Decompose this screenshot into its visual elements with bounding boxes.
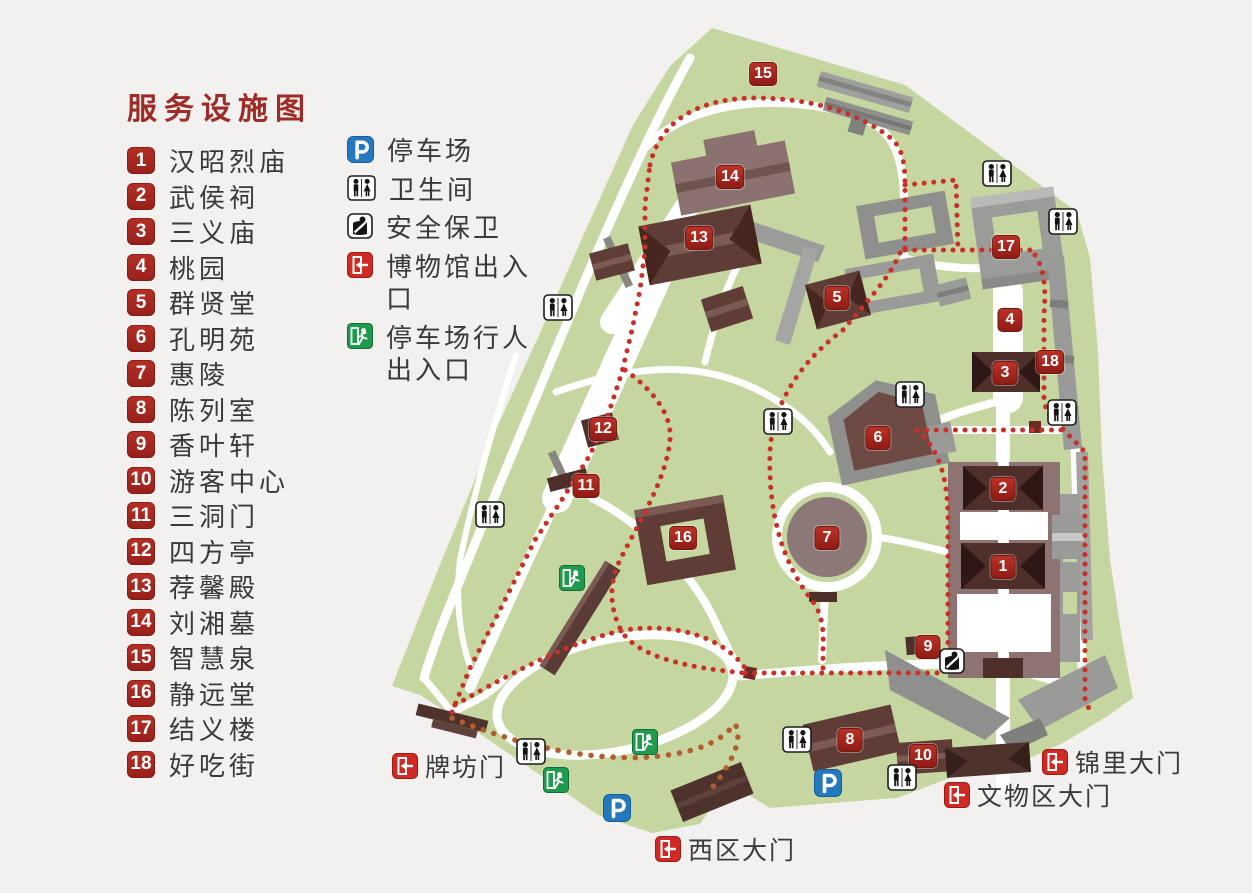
facility-item: 博物馆出入口 [347,251,547,316]
legend-item: 16静远堂 [127,679,312,708]
legend-item-label: 三洞门 [169,497,259,534]
toilet-icon [516,738,546,765]
legend-panel: 服务设施图 1汉昭烈庙 2武侯祠 3三义庙 4桃园 5群贤堂 6孔明苑 7惠陵 … [127,84,312,785]
legend-item-label: 刘湘墓 [169,604,259,641]
map-marker-15[interactable]: 15 [749,62,777,86]
facility-label: 博物馆出入口 [386,251,544,316]
legend-item-number: 16 [127,680,155,707]
museum-exit-icon [944,782,970,808]
pedestrian-exit-icon [632,729,658,755]
legend-item-number: 14 [127,609,155,636]
legend-item-number: 2 [127,183,155,210]
legend-item-label: 桃园 [169,249,229,286]
toilet-icon [543,294,573,321]
legend-item: 15智慧泉 [127,643,312,672]
toilet-icon [763,408,793,435]
gate-relics-area: 文物区大门 [944,777,1112,813]
map-marker-12[interactable]: 12 [589,417,617,441]
facility-label: 安全保卫 [386,212,544,245]
toilet-icon [895,381,925,408]
legend-item-label: 游客中心 [169,462,289,499]
facility-label: 停车场 [387,135,545,168]
legend-item-label: 荐馨殿 [169,568,259,605]
legend-item: 18好吃街 [127,750,312,779]
legend-item-label: 三义庙 [169,213,259,250]
facility-item: 停车场行人出入口 [347,322,547,387]
legend-item: 11三洞门 [127,501,312,530]
museum-exit-icon [392,753,418,779]
toilet-icon [782,726,812,753]
legend-item: 12四方亭 [127,537,312,566]
legend-item: 13荐馨殿 [127,572,312,601]
toilet-icon [1048,208,1078,235]
map-marker-14[interactable]: 14 [716,165,744,189]
legend-item: 10游客中心 [127,466,312,495]
facility-label: 卫生间 [389,174,547,207]
map-marker-18[interactable]: 18 [1036,350,1064,374]
legend-item-label: 群贤堂 [169,284,259,321]
gate-label: 西区大门 [688,831,796,867]
legend-item: 2武侯祠 [127,182,312,211]
legend-item-label: 智慧泉 [169,639,259,676]
map-marker-3[interactable]: 3 [993,361,1018,385]
legend-item-number: 10 [127,467,155,494]
legend-item-number: 6 [127,325,155,352]
pedestrian-exit-icon [543,767,569,793]
pedestrian-exit-icon [347,323,373,349]
parking-icon [814,769,842,797]
security-icon [939,648,965,674]
legend-item-label: 静远堂 [169,675,259,712]
legend-item-number: 12 [127,538,155,565]
map-marker-1[interactable]: 1 [991,555,1016,579]
legend-item-label: 武侯祠 [169,178,259,215]
legend-item: 6孔明苑 [127,324,312,353]
legend-item-number: 17 [127,715,155,742]
gate-label: 牌坊门 [425,748,506,784]
toilet-icon [887,764,917,791]
gate-jinli: 锦里大门 [1042,744,1183,780]
museum-exit-icon [1042,749,1068,775]
facility-legend: 停车场 卫生间 安全保卫 博物馆出入口 停车场行人出入口 [347,135,547,393]
gate-paifang: 牌坊门 [392,748,506,784]
legend-item: 9香叶轩 [127,430,312,459]
legend-item: 1汉昭烈庙 [127,146,312,175]
map-marker-9[interactable]: 9 [916,635,941,659]
legend-item-number: 11 [127,502,155,529]
map-marker-11[interactable]: 11 [573,474,600,498]
main-complex [948,462,1084,678]
legend-item-label: 结义楼 [169,710,259,747]
facility-item: 安全保卫 [347,212,547,245]
legend-item-number: 1 [127,147,155,174]
legend-item-label: 香叶轩 [169,426,259,463]
map-marker-16[interactable]: 16 [669,526,697,550]
map-marker-6[interactable]: 6 [866,426,891,450]
legend-item-label: 汉昭烈庙 [169,142,289,179]
legend-item-number: 4 [127,254,155,281]
pedestrian-exit-icon [559,565,585,591]
legend-item: 3三义庙 [127,217,312,246]
park-service-map-page: 服务设施图 1汉昭烈庙 2武侯祠 3三义庙 4桃园 5群贤堂 6孔明苑 7惠陵 … [0,0,1252,893]
legend-item-number: 7 [127,360,155,387]
map-marker-17[interactable]: 17 [992,235,1020,259]
parking-icon [603,794,631,822]
legend-item-label: 好吃街 [169,746,259,783]
parking-icon [347,136,374,163]
legend-item-number: 5 [127,289,155,316]
legend-item: 14刘湘墓 [127,608,312,637]
security-icon [347,213,373,239]
legend-item-number: 15 [127,644,155,671]
legend-items: 1汉昭烈庙 2武侯祠 3三义庙 4桃园 5群贤堂 6孔明苑 7惠陵 8陈列室 9… [127,146,312,779]
toilet-icon [1047,399,1077,426]
legend-title: 服务设施图 [127,84,312,128]
legend-item-number: 9 [127,431,155,458]
toilet-icon [982,160,1012,187]
gate-label: 锦里大门 [1075,744,1183,780]
toilet-icon [347,175,376,201]
legend-item-number: 13 [127,573,155,600]
legend-item-number: 3 [127,218,155,245]
legend-item: 7惠陵 [127,359,312,388]
map-marker-7[interactable]: 7 [815,526,840,550]
legend-item: 4桃园 [127,253,312,282]
facility-item: 停车场 [347,135,547,168]
facility-item: 卫生间 [347,174,547,207]
legend-item-label: 孔明苑 [169,320,259,357]
toilet-icon [475,501,505,528]
museum-exit-icon [655,836,681,862]
legend-item-label: 四方亭 [169,533,259,570]
map-marker-2[interactable]: 2 [991,477,1016,501]
legend-item: 8陈列室 [127,395,312,424]
museum-exit-icon [347,252,373,278]
legend-item-label: 陈列室 [169,391,259,428]
facility-label: 停车场行人出入口 [386,322,544,387]
legend-item-number: 8 [127,396,155,423]
map-marker-8[interactable]: 8 [838,728,863,752]
map-marker-13[interactable]: 13 [685,226,713,250]
gate-label: 文物区大门 [977,777,1112,813]
map-marker-5[interactable]: 5 [825,286,850,310]
legend-item-number: 18 [127,751,155,778]
legend-item: 17结义楼 [127,714,312,743]
legend-item-label: 惠陵 [169,355,229,392]
gate-west: 西区大门 [655,831,796,867]
legend-item: 5群贤堂 [127,288,312,317]
map-marker-4[interactable]: 4 [998,308,1023,332]
